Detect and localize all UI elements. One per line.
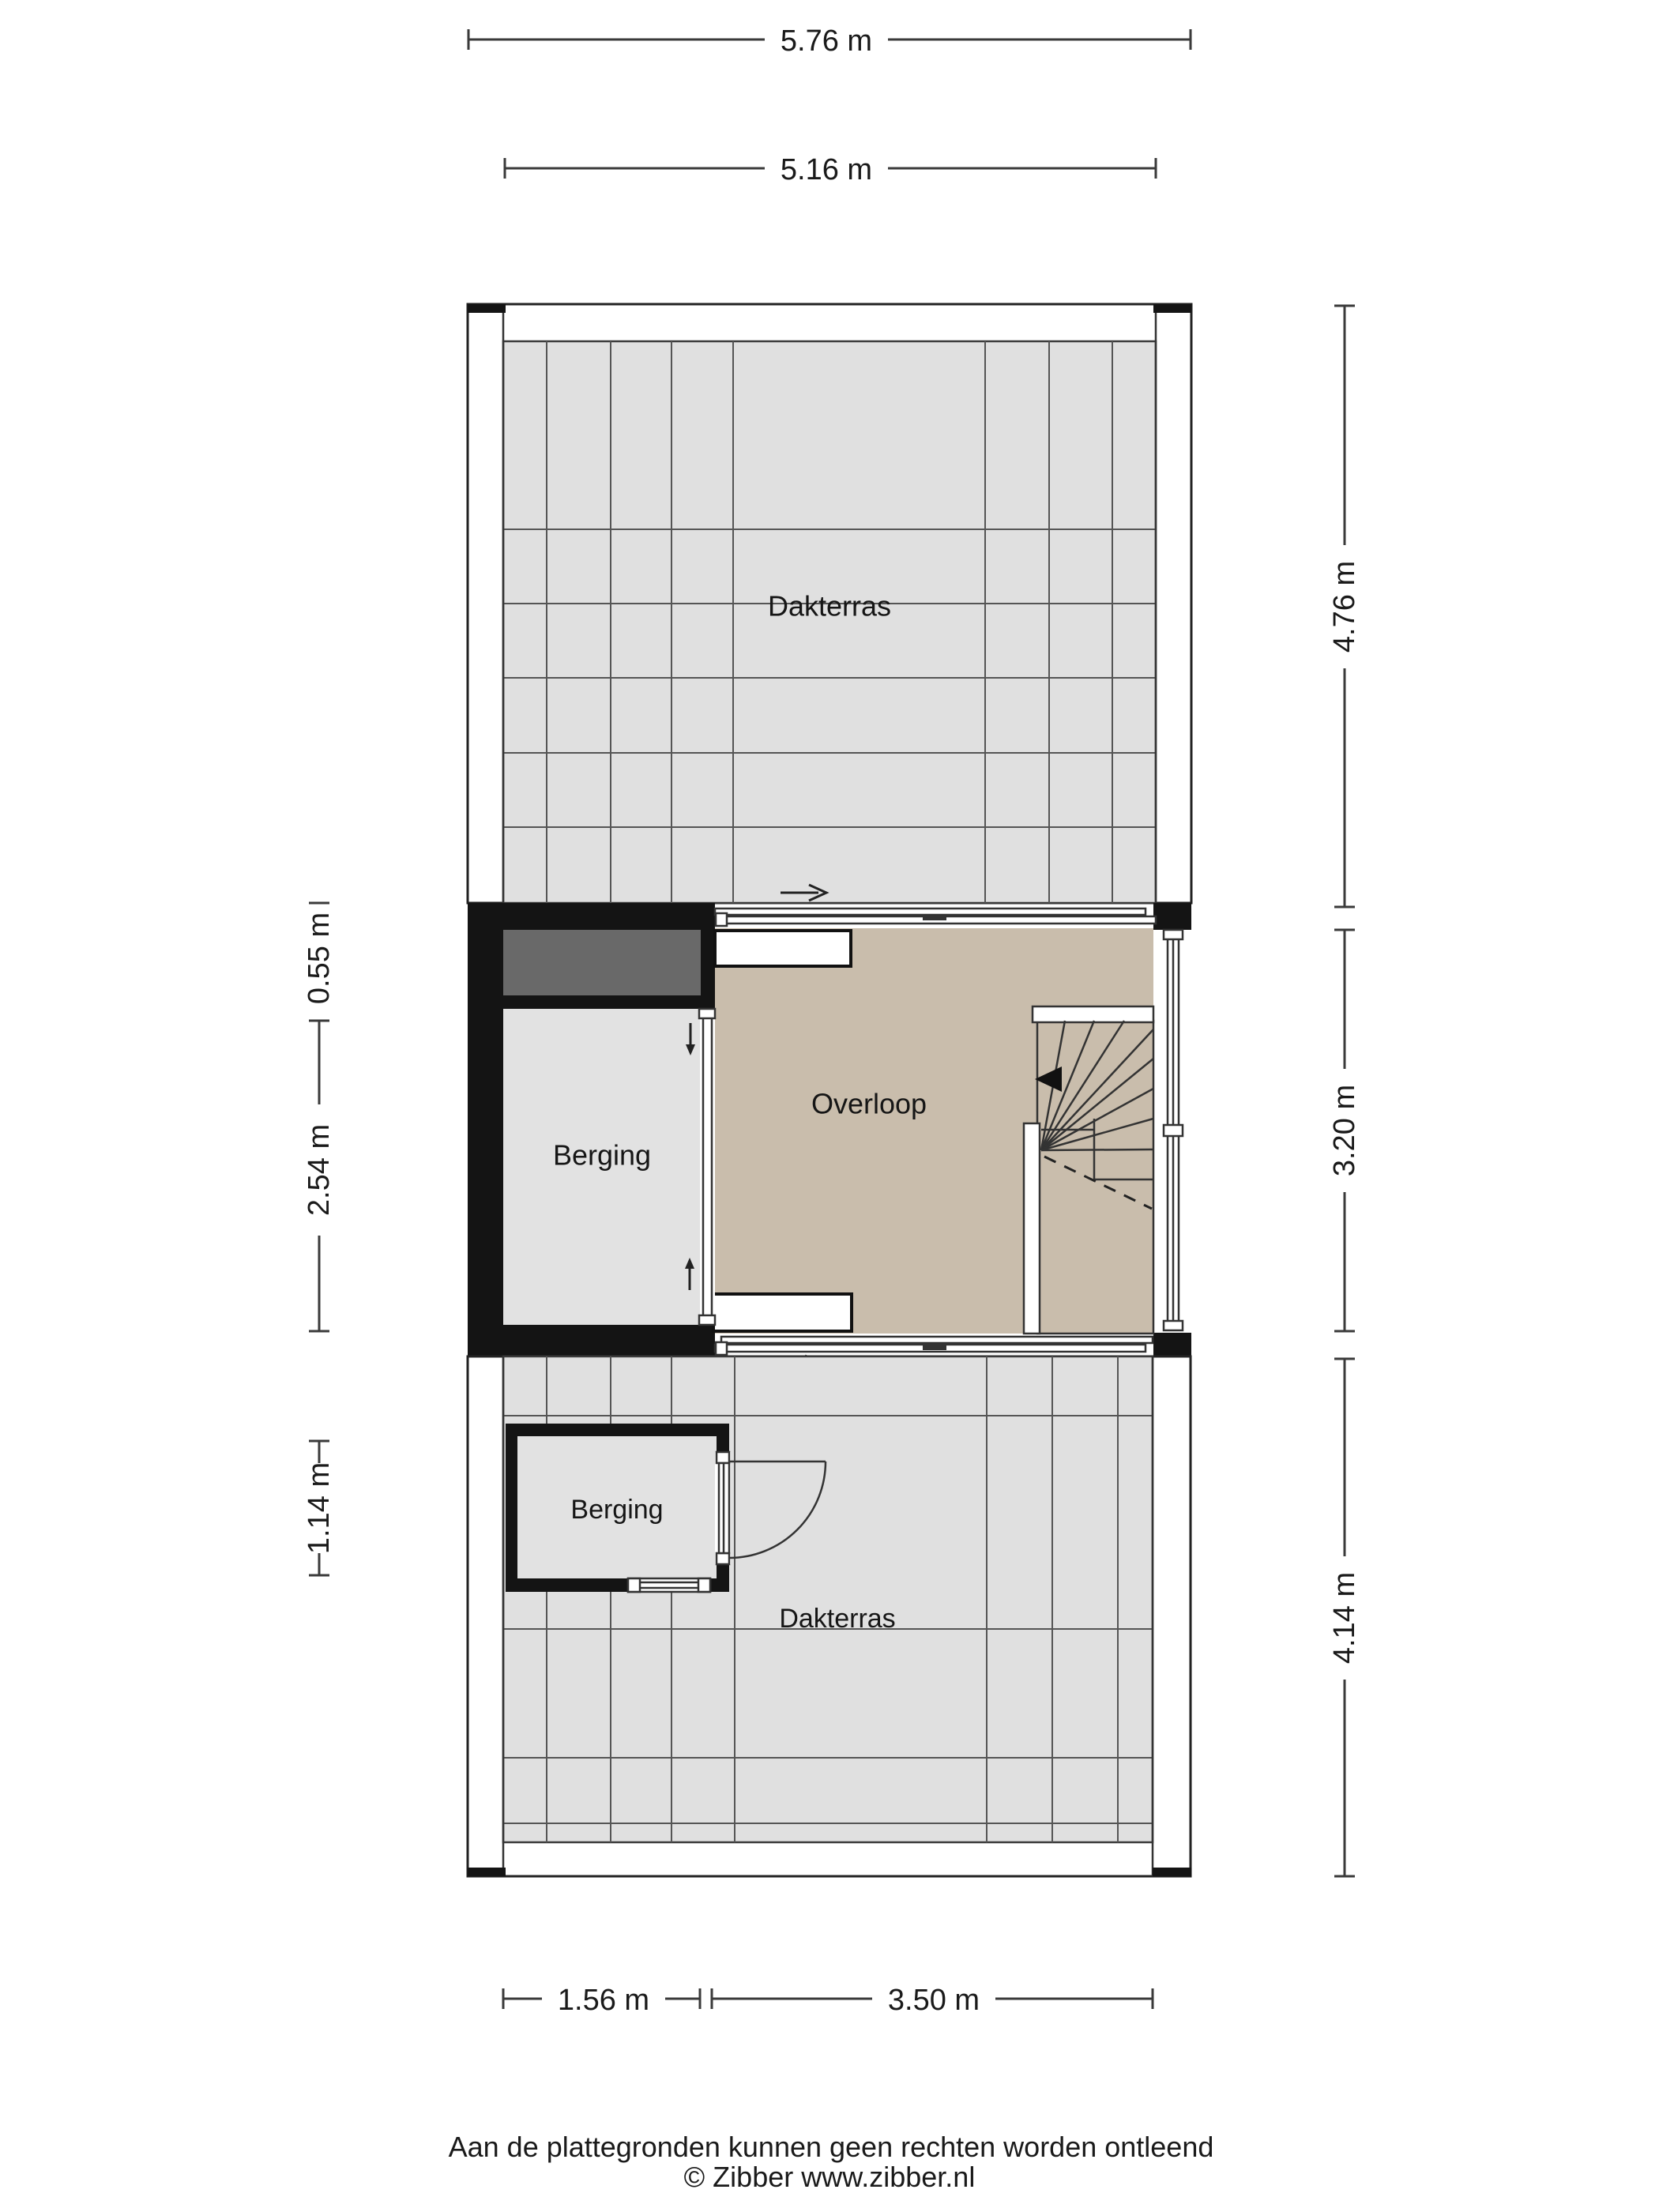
floorplan-drawing: Dakterras xyxy=(0,0,1659,2212)
floorplan-page: Dakterras xyxy=(0,0,1659,2212)
dim-bottom-right: 3.50 m xyxy=(888,1984,980,2017)
window-bottom-berging xyxy=(628,1578,710,1592)
sliding-door-bottom xyxy=(715,1335,1153,1356)
bottom-roof-terrace: Berging Dakterras xyxy=(468,1356,1191,1876)
door-leaf-bottom xyxy=(713,1294,852,1331)
door-leaf-top xyxy=(715,931,851,966)
sliding-door-top xyxy=(715,905,1156,928)
dim-right-top: 4.76 m xyxy=(1328,561,1361,653)
footer-disclaimer: Aan de plattegronden kunnen geen rechten… xyxy=(449,2131,1214,2163)
room-label-overloop: Overloop xyxy=(811,1088,927,1120)
footer: Aan de plattegronden kunnen geen rechten… xyxy=(449,2131,1214,2193)
void-shaft xyxy=(503,930,701,995)
room-label-dakterras-bottom: Dakterras xyxy=(779,1604,895,1634)
overloop-floor xyxy=(713,928,1153,1334)
top-roof-terrace: Dakterras xyxy=(468,304,1191,903)
window-right xyxy=(1164,930,1183,1330)
middle-section: Overloop Berging xyxy=(468,885,1191,1371)
footer-copyright: © Zibber www.zibber.nl xyxy=(684,2161,976,2193)
dim-left-middle: 2.54 m xyxy=(303,1124,336,1216)
dim-top-inner: 5.16 m xyxy=(781,153,872,186)
stair-stringer xyxy=(1024,1123,1040,1334)
dim-top-outer: 5.76 m xyxy=(781,24,872,58)
dim-right-middle: 3.20 m xyxy=(1328,1085,1361,1176)
room-label-dakterras-top: Dakterras xyxy=(768,590,891,623)
dim-bottom-left: 1.56 m xyxy=(558,1984,649,2017)
dim-right-bottom: 4.14 m xyxy=(1328,1572,1361,1664)
room-label-berging-bottom: Berging xyxy=(570,1495,663,1525)
glazed-partition xyxy=(699,1009,715,1325)
room-label-berging-middle: Berging xyxy=(553,1139,651,1172)
dim-left-bottom: 1.14 m xyxy=(303,1462,336,1554)
dim-left-top: 0.55 m xyxy=(303,912,336,1004)
